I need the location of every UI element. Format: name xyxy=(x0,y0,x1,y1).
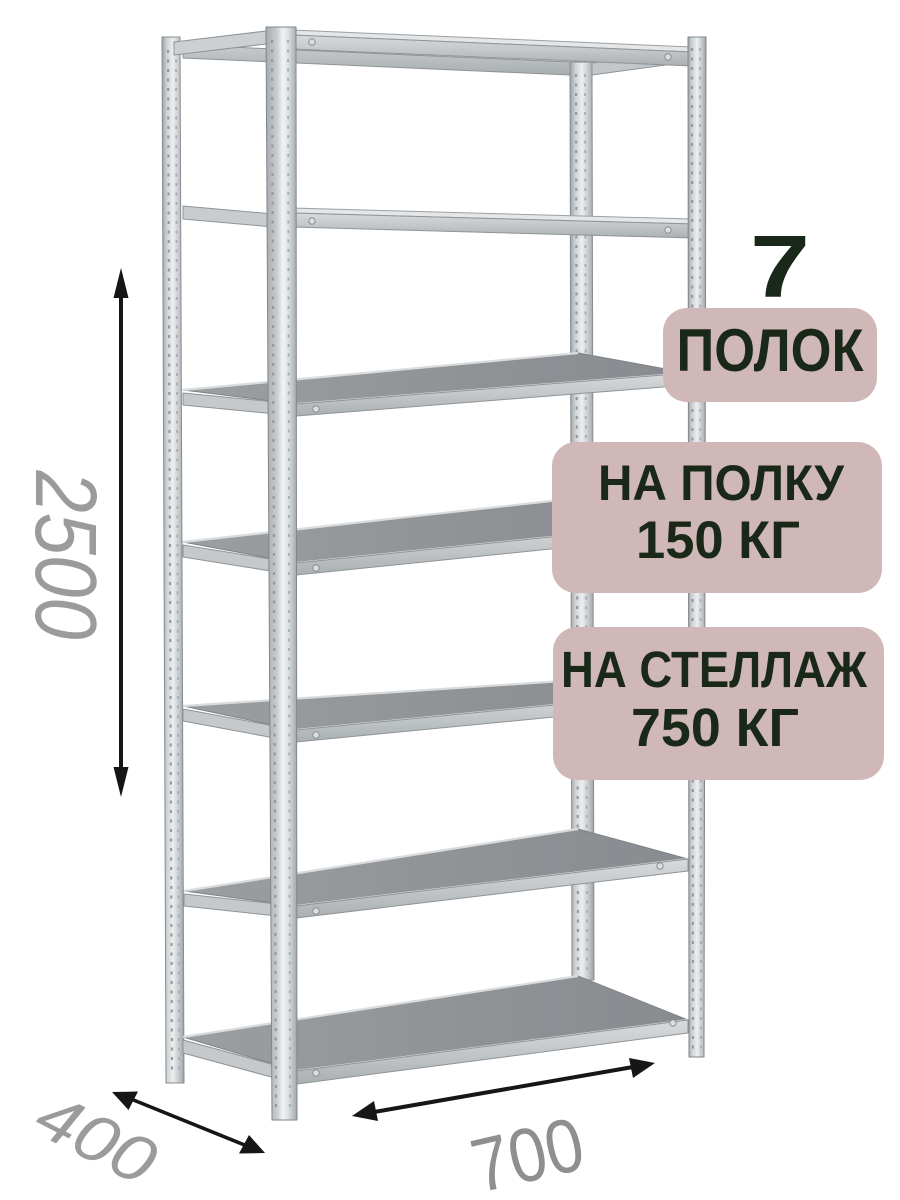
svg-text:НА СТЕЛЛАЖ: НА СТЕЛЛАЖ xyxy=(561,641,868,698)
svg-text:ПОЛОК: ПОЛОК xyxy=(677,317,864,384)
svg-text:НА ПОЛКУ: НА ПОЛКУ xyxy=(598,455,845,511)
svg-text:7: 7 xyxy=(750,217,810,316)
svg-text:2500: 2500 xyxy=(17,470,114,640)
svg-text:150 КГ: 150 КГ xyxy=(636,511,800,570)
svg-text:750 КГ: 750 КГ xyxy=(631,698,799,758)
